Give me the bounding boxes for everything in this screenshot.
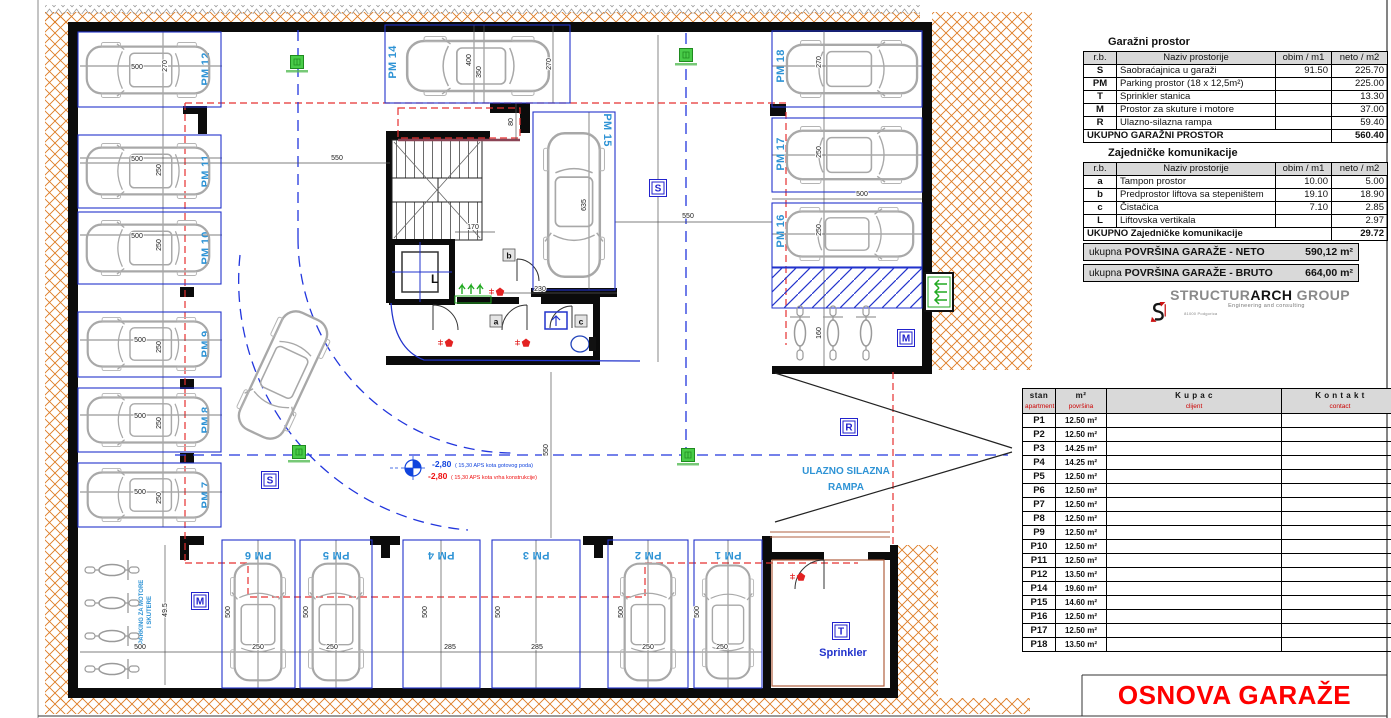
table-row: SSaobraćajnica u garaži91.50225.70 — [1084, 65, 1388, 78]
row-obim: 19.10 — [1276, 189, 1332, 202]
summary-bruto-label: ukupna POVRŠINA GARAŽE - BRUTO — [1089, 267, 1273, 280]
row-name: Parking prostor (18 x 12,5m²) — [1117, 78, 1276, 91]
dimension-label: 250 — [156, 164, 163, 176]
dimension-label: 250 — [252, 644, 264, 651]
apt-contact-cell — [1282, 596, 1391, 610]
apt-client-cell — [1107, 554, 1282, 568]
apt-contact-cell — [1282, 414, 1391, 428]
row-name: Ulazno-silazna rampa — [1117, 117, 1276, 130]
apt-id: P17 — [1023, 624, 1056, 638]
common-areas-table: r.b.Naziv prostorijeobim / m1neto / m2aT… — [1083, 162, 1388, 241]
table-row: cČistačica7.102.85 — [1084, 202, 1388, 215]
apt-client-cell — [1107, 498, 1282, 512]
apt-row: P112.50 m² — [1023, 414, 1391, 428]
dimension-label: 500 — [225, 606, 232, 618]
logo-icon — [1150, 288, 1166, 332]
zone-tag: S — [655, 184, 662, 195]
dimension-label: 270 — [162, 60, 169, 72]
apt-col-header: m²površina — [1056, 389, 1107, 414]
apt-client-cell — [1107, 582, 1282, 596]
apt-client-cell — [1107, 428, 1282, 442]
row-obim — [1276, 91, 1332, 104]
apt-id: P18 — [1023, 638, 1056, 652]
summary-bruto: ukupna POVRŠINA GARAŽE - BRUTO 664,00 m² — [1083, 264, 1359, 282]
col-header: r.b. — [1084, 52, 1117, 65]
garage-area-table: r.b.Naziv prostorijeobim / m1neto / m2SS… — [1083, 51, 1388, 143]
apt-row: P612.50 m² — [1023, 484, 1391, 498]
apt-contact-cell — [1282, 456, 1391, 470]
car — [88, 468, 209, 521]
apt-area: 12.50 m² — [1056, 470, 1107, 484]
level-value-structure: -2,80 — [428, 471, 448, 481]
row-name: Liftovska vertikala — [1117, 215, 1276, 228]
apt-contact-cell — [1282, 582, 1391, 596]
table-total-row: UKUPNO GARAŽNI PROSTOR560.40 — [1084, 130, 1388, 143]
table-header-row: r.b.Naziv prostorijeobim / m1neto / m2 — [1084, 52, 1388, 65]
apt-id: P6 — [1023, 484, 1056, 498]
parking-stall-label: PM 2 — [635, 549, 662, 561]
motorcycle — [85, 560, 139, 580]
apt-id: P4 — [1023, 456, 1056, 470]
title-block: OSNOVA GARAŽE — [1082, 675, 1387, 716]
col-header: Naziv prostorije — [1117, 163, 1276, 176]
exit-sign-wall — [925, 273, 953, 311]
dimension-label: 250 — [156, 341, 163, 353]
parking-stall — [222, 540, 295, 688]
parking-stall-label: PM 8 — [200, 407, 212, 434]
col-header: neto / m2 — [1332, 163, 1388, 176]
zone-tag: M — [902, 334, 910, 345]
dimension-label: 635 — [581, 199, 588, 211]
electrical-unit-caption — [677, 463, 699, 466]
dimension-label: 500 — [856, 191, 868, 198]
lift-label: L — [431, 272, 438, 286]
level-value-floor: -2,80 — [432, 459, 452, 469]
dimension-label: 500 — [131, 64, 143, 71]
row-code: a — [1084, 176, 1117, 189]
apt-col-header: K o n t a k tcontact — [1282, 389, 1391, 414]
car — [544, 133, 605, 277]
row-neto: 18.90 — [1332, 189, 1388, 202]
apt-row: P1213.50 m² — [1023, 568, 1391, 582]
dimension-label: 550 — [543, 444, 550, 456]
apt-client-cell — [1107, 540, 1282, 554]
apt-id: P2 — [1023, 428, 1056, 442]
dimension-label: 250 — [156, 239, 163, 251]
apt-row: P912.50 m² — [1023, 526, 1391, 540]
apt-col-header: K u p a cclijent — [1107, 389, 1282, 414]
moto-label-line1: PARKING ZA MOTORE — [139, 580, 145, 645]
fire-device-icon — [515, 339, 530, 347]
apt-contact-cell — [1282, 610, 1391, 624]
motorcycle — [85, 659, 139, 679]
row-name: Saobraćajnica u garaži — [1117, 65, 1276, 78]
row-name: Prostor za skuture i motore — [1117, 104, 1276, 117]
row-code: T — [1084, 91, 1117, 104]
dimension-label: 250 — [716, 644, 728, 651]
motorcycle — [85, 626, 139, 646]
dimension-label: 270 — [816, 56, 823, 68]
row-code: c — [1084, 202, 1117, 215]
fire-device-icon — [790, 573, 805, 581]
apt-client-cell — [1107, 414, 1282, 428]
col-header: Naziv prostorije — [1117, 52, 1276, 65]
dimension-label: 500 — [131, 233, 143, 240]
turning-car — [230, 304, 336, 445]
row-neto: 59.40 — [1332, 117, 1388, 130]
apt-id: P3 — [1023, 442, 1056, 456]
apt-row: P812.50 m² — [1023, 512, 1391, 526]
zone-tag: S — [267, 476, 274, 487]
apt-contact-cell — [1282, 554, 1391, 568]
dimension-label: 250 — [156, 492, 163, 504]
dimension-label: 270 — [546, 58, 553, 70]
sheet-title: OSNOVA GARAŽE — [1118, 680, 1351, 711]
common-table-title: Zajedničke komunikacije — [1108, 147, 1238, 159]
dimension-label: 500 — [134, 337, 146, 344]
apt-contact-cell — [1282, 526, 1391, 540]
apt-contact-cell — [1282, 442, 1391, 456]
dimension-label: 400 — [466, 54, 473, 66]
summary-neto: ukupna POVRŠINA GARAŽE - NETO 590,12 m² — [1083, 243, 1359, 261]
apt-area: 12.50 m² — [1056, 484, 1107, 498]
apt-row: P1419.60 m² — [1023, 582, 1391, 596]
apt-client-cell — [1107, 484, 1282, 498]
garage-table-title: Garažni prostor — [1108, 36, 1190, 48]
room-tag: c — [579, 317, 584, 327]
dimension-label: 500 — [303, 606, 310, 618]
apt-client-cell — [1107, 624, 1282, 638]
room-tag: a — [494, 317, 499, 327]
apt-id: P8 — [1023, 512, 1056, 526]
apt-client-cell — [1107, 526, 1282, 540]
table-row: MProstor za skuture i motore37.00 — [1084, 104, 1388, 117]
row-code: PM — [1084, 78, 1117, 91]
electrical-unit-caption — [675, 63, 697, 66]
toilet — [571, 336, 596, 352]
apt-row: P1514.60 m² — [1023, 596, 1391, 610]
apt-id: P16 — [1023, 610, 1056, 624]
apt-contact-cell — [1282, 512, 1391, 526]
parking-stall-label: PM 5 — [323, 549, 350, 561]
row-neto: 225.00 — [1332, 78, 1388, 91]
car — [87, 42, 209, 97]
row-name: Predprostor liftova sa stepeništem — [1117, 189, 1276, 202]
dimension-label: 230 — [534, 286, 546, 293]
zone-tag: R — [845, 423, 853, 434]
total-label: UKUPNO Zajedničke komunikacije — [1084, 228, 1332, 241]
zone-tag: M — [196, 597, 204, 608]
row-obim: 7.10 — [1276, 202, 1332, 215]
table-row: PMParking prostor (18 x 12,5m²)225.00 — [1084, 78, 1388, 91]
parking-stall-label: PM 1 — [715, 549, 742, 561]
apt-row: P1612.50 m² — [1023, 610, 1391, 624]
apt-contact-cell — [1282, 470, 1391, 484]
dimension-label: 550 — [331, 155, 343, 162]
fire-device-icon — [438, 339, 453, 347]
apt-contact-cell — [1282, 428, 1391, 442]
dimension-label: 250 — [816, 224, 823, 236]
row-code: S — [1084, 65, 1117, 78]
apt-id: P5 — [1023, 470, 1056, 484]
car — [407, 37, 549, 96]
row-code: b — [1084, 189, 1117, 202]
apt-client-cell — [1107, 442, 1282, 456]
apt-row: P314.25 m² — [1023, 442, 1391, 456]
logo: STRUCTURARCH GROUP Engineering and consu… — [1150, 288, 1350, 332]
parking-stall-label: PM 4 — [427, 549, 454, 561]
col-header: neto / m2 — [1332, 52, 1388, 65]
car — [88, 317, 209, 370]
logo-address: 81000 Podgorica — [1184, 311, 1350, 316]
row-neto: 2.97 — [1332, 215, 1388, 228]
dimension-label: 250 — [642, 644, 654, 651]
apt-row: P1712.50 m² — [1023, 624, 1391, 638]
row-neto: 37.00 — [1332, 104, 1388, 117]
apt-area: 12.50 m² — [1056, 414, 1107, 428]
motorcycle — [85, 593, 139, 613]
summary-bruto-value: 664,00 m² — [1305, 267, 1353, 280]
apartments-table: stanapartmentm²površinaK u p a cclijentK… — [1022, 388, 1391, 652]
apt-id: P1 — [1023, 414, 1056, 428]
row-obim: 10.00 — [1276, 176, 1332, 189]
summary-neto-value: 590,12 m² — [1305, 246, 1353, 259]
apt-row: P712.50 m² — [1023, 498, 1391, 512]
dimension-label: 170 — [467, 224, 479, 231]
fire-device-icon — [489, 288, 504, 296]
apt-row: P212.50 m² — [1023, 428, 1391, 442]
dimension-label: 285 — [444, 644, 456, 651]
dimension-label: 550 — [682, 213, 694, 220]
apt-client-cell — [1107, 470, 1282, 484]
table-row: TSprinkler stanica13.30 — [1084, 91, 1388, 104]
dimension-label: 500 — [131, 156, 143, 163]
motorcycle — [823, 306, 843, 360]
table-total-row: UKUPNO Zajedničke komunikacije29.72 — [1084, 228, 1388, 241]
motorcycle — [790, 306, 810, 360]
dimension-label: 285 — [531, 644, 543, 651]
row-obim — [1276, 215, 1332, 228]
closet-sign — [545, 312, 567, 329]
apt-col-header: stanapartment — [1023, 389, 1056, 414]
apt-area: 12.50 m² — [1056, 512, 1107, 526]
level-marker: -2,80 ( 15,30 APS kota gotovog poda) -2,… — [390, 456, 537, 481]
apt-area: 12.50 m² — [1056, 526, 1107, 540]
table-row: LLiftovska vertikala2.97 — [1084, 215, 1388, 228]
apt-row: P1813.50 m² — [1023, 638, 1391, 652]
apt-area: 14.25 m² — [1056, 442, 1107, 456]
summary-neto-label: ukupna POVRŠINA GARAŽE - NETO — [1089, 246, 1265, 259]
row-name: Tampon prostor — [1117, 176, 1276, 189]
apt-area: 12.50 m² — [1056, 554, 1107, 568]
parking-stall-label: PM 6 — [245, 549, 272, 561]
parking-stall-label: PM 18 — [775, 49, 787, 82]
apt-area: 13.50 m² — [1056, 568, 1107, 582]
apt-id: P10 — [1023, 540, 1056, 554]
row-name: Čistačica — [1117, 202, 1276, 215]
apt-contact-cell — [1282, 638, 1391, 652]
dimension-label: 49.5 — [162, 603, 169, 617]
col-header: r.b. — [1084, 163, 1117, 176]
table-row: bPredprostor liftova sa stepeništem19.10… — [1084, 189, 1388, 202]
car — [87, 143, 209, 198]
apt-area: 19.60 m² — [1056, 582, 1107, 596]
dimension-label: 250 — [816, 146, 823, 158]
moto-label-line2: I SKUTERE — [147, 596, 153, 628]
logo-text: STRUCTURARCH GROUP Engineering and consu… — [1170, 288, 1350, 316]
ramp-label-line2: RAMPA — [828, 482, 864, 493]
apt-row: P1012.50 m² — [1023, 540, 1391, 554]
electrical-unit-caption — [288, 460, 310, 463]
sprinkler-label: Sprinkler — [819, 647, 867, 659]
dimension-label: 350 — [476, 66, 483, 78]
apt-contact-cell — [1282, 540, 1391, 554]
dimension-label: 500 — [134, 413, 146, 420]
red-dashed-lines — [185, 103, 893, 597]
car — [88, 393, 209, 446]
ramp-label-line1: ULAZNO SILAZNA — [802, 466, 890, 477]
room-tag: b — [506, 251, 511, 261]
apt-area: 12.50 m² — [1056, 610, 1107, 624]
row-code: M — [1084, 104, 1117, 117]
apt-id: P12 — [1023, 568, 1056, 582]
table-row: RUlazno-silazna rampa59.40 — [1084, 117, 1388, 130]
dimension-label: 500 — [495, 606, 502, 618]
apt-area: 12.50 m² — [1056, 498, 1107, 512]
parking-stall-label: PM 7 — [200, 482, 212, 509]
dimension-label: 250 — [326, 644, 338, 651]
motorcycle — [856, 306, 876, 360]
electrical-unit-caption — [286, 70, 308, 73]
apt-contact-cell — [1282, 624, 1391, 638]
dimension-label: 500 — [618, 606, 625, 618]
row-obim — [1276, 117, 1332, 130]
apt-client-cell — [1107, 596, 1282, 610]
dimension-label: 250 — [156, 417, 163, 429]
apt-client-cell — [1107, 568, 1282, 582]
row-obim — [1276, 78, 1332, 91]
zone-tag: T — [838, 627, 844, 638]
row-neto: 225.70 — [1332, 65, 1388, 78]
table-header-row: r.b.Naziv prostorijeobim / m1neto / m2 — [1084, 163, 1388, 176]
apt-area: 12.50 m² — [1056, 624, 1107, 638]
apt-area: 14.60 m² — [1056, 596, 1107, 610]
row-name: Sprinkler stanica — [1117, 91, 1276, 104]
apt-area: 13.50 m² — [1056, 638, 1107, 652]
aisle-edge — [391, 303, 640, 361]
parking-stall-label: PM 14 — [387, 45, 399, 79]
parking-stall-label: PM 3 — [523, 549, 550, 561]
parking-stall-label: PM 17 — [775, 137, 787, 170]
col-header: obim / m1 — [1276, 52, 1332, 65]
row-neto: 2.85 — [1332, 202, 1388, 215]
apt-row: P1112.50 m² — [1023, 554, 1391, 568]
apt-area: 12.50 m² — [1056, 428, 1107, 442]
apt-id: P15 — [1023, 596, 1056, 610]
row-neto: 5.00 — [1332, 176, 1388, 189]
apt-client-cell — [1107, 610, 1282, 624]
apt-row: P512.50 m² — [1023, 470, 1391, 484]
row-code: R — [1084, 117, 1117, 130]
apt-id: P14 — [1023, 582, 1056, 596]
dimension-label: 500 — [134, 489, 146, 496]
apt-area: 12.50 m² — [1056, 540, 1107, 554]
drawing-sheet: -2,80 ( 15,30 APS kota gotovog poda) -2,… — [0, 0, 1391, 718]
apt-header-row: stanapartmentm²površinaK u p a cclijentK… — [1023, 389, 1391, 414]
parking-stall — [403, 540, 480, 688]
sprinkler-room-lining — [772, 560, 884, 686]
apt-client-cell — [1107, 638, 1282, 652]
row-neto: 13.30 — [1332, 91, 1388, 104]
apt-area: 14.25 m² — [1056, 456, 1107, 470]
logo-wordmark: STRUCTURARCH GROUP — [1170, 288, 1350, 303]
apt-row: P414.25 m² — [1023, 456, 1391, 470]
apt-id: P9 — [1023, 526, 1056, 540]
elevator — [392, 242, 452, 302]
car — [787, 40, 917, 97]
totals-summary: ukupna POVRŠINA GARAŽE - NETO 590,12 m² … — [1083, 243, 1359, 285]
logo-tagline: Engineering and consulting — [1228, 303, 1350, 309]
apt-client-cell — [1107, 512, 1282, 526]
apt-contact-cell — [1282, 484, 1391, 498]
total-value: 560.40 — [1332, 130, 1388, 143]
apt-contact-cell — [1282, 498, 1391, 512]
dimension-label: 160 — [816, 327, 823, 339]
parking-stall-label: PM 16 — [775, 214, 787, 247]
parking-stall-label: PM 9 — [200, 331, 212, 358]
parking-stall — [772, 31, 922, 107]
level-note-structure: ( 15,30 APS kota vrha konstrukcije) — [451, 475, 537, 481]
insulation-zigzag — [45, 5, 920, 14]
car — [87, 220, 209, 275]
dimension-label: 500 — [134, 644, 146, 651]
dimension-label: 80 — [508, 118, 515, 126]
row-obim — [1276, 104, 1332, 117]
row-code: L — [1084, 215, 1117, 228]
table-row: aTampon prostor10.005.00 — [1084, 176, 1388, 189]
no-parking-strip — [772, 268, 922, 308]
row-obim: 91.50 — [1276, 65, 1332, 78]
dimension-label: 500 — [694, 606, 701, 618]
dimension-label: 500 — [422, 606, 429, 618]
parking-stall-label: PM 15 — [601, 113, 613, 146]
col-header: obim / m1 — [1276, 163, 1332, 176]
apt-client-cell — [1107, 456, 1282, 470]
apt-contact-cell — [1282, 568, 1391, 582]
total-label: UKUPNO GARAŽNI PROSTOR — [1084, 130, 1332, 143]
total-value: 29.72 — [1332, 228, 1388, 241]
apt-id: P11 — [1023, 554, 1056, 568]
level-note-floor: ( 15,30 APS kota gotovog poda) — [455, 463, 533, 469]
apt-id: P7 — [1023, 498, 1056, 512]
